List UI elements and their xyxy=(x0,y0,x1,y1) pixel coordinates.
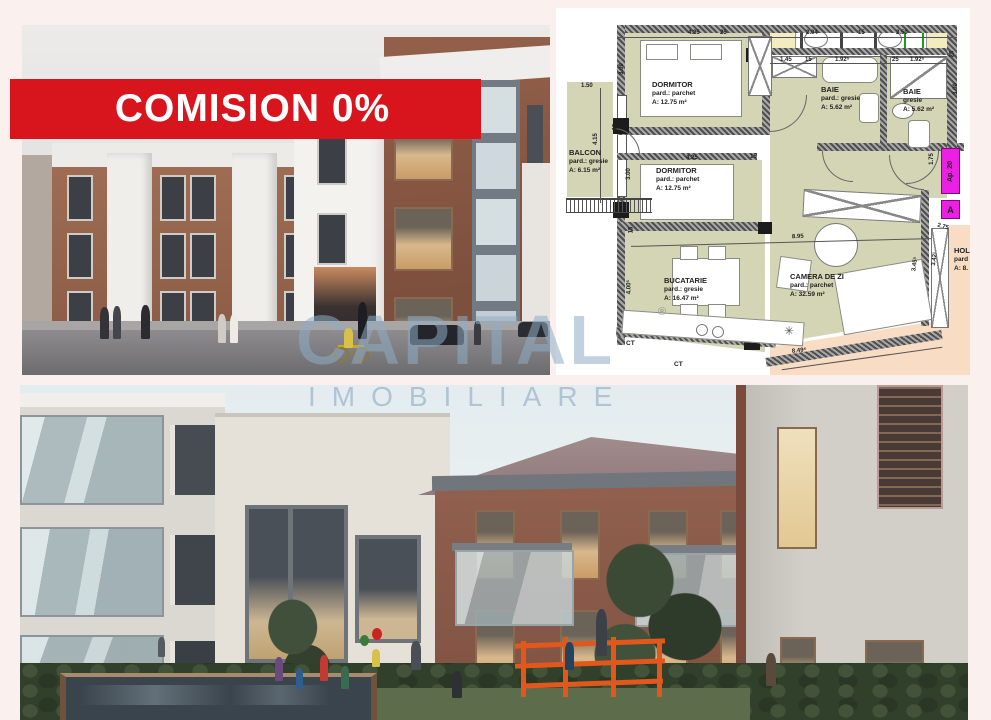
balloon-green xyxy=(360,635,369,646)
window xyxy=(317,133,347,185)
ct-label: CT xyxy=(626,340,635,347)
dimension-label: 4.25 xyxy=(688,30,700,36)
room-floor: pard.: gresie xyxy=(664,286,707,295)
pedestrian xyxy=(141,305,150,339)
dimension-label: 15 xyxy=(612,124,618,131)
dimension-label: 15 xyxy=(628,227,634,234)
room-area: A: 16.47 m² xyxy=(664,295,707,304)
wall xyxy=(617,127,770,135)
room-label-baie-1: BAIE pard.: gresie A: 5.62 m² xyxy=(821,85,860,113)
glass-pane xyxy=(476,143,516,189)
dimension-label: 15 xyxy=(858,30,865,36)
wardrobe xyxy=(748,36,772,96)
window xyxy=(190,233,216,279)
letter-tag-label: A xyxy=(947,205,954,215)
room-label-dormitor-2: DORMITOR pard.: parchet A: 12.75 m² xyxy=(656,166,699,194)
chair xyxy=(680,246,698,260)
toilet xyxy=(859,93,879,123)
room-name: DORMITOR xyxy=(652,80,695,90)
balcony-railing xyxy=(566,198,652,213)
dimension-label: 4.00⁵ xyxy=(626,280,632,295)
dimension-line xyxy=(770,63,948,64)
dimension-label: 25 xyxy=(892,57,899,63)
room-name: BAIE xyxy=(903,87,934,97)
glass-pane xyxy=(476,199,516,245)
dimension-label: 1.50 xyxy=(581,83,593,89)
dimension-line xyxy=(617,37,957,38)
person xyxy=(296,668,303,689)
dimension-line xyxy=(600,88,601,203)
column xyxy=(758,222,772,234)
glass-pane xyxy=(476,255,516,301)
room-name: CAMERA DE ZI xyxy=(790,272,844,282)
room-area: A: 12.75 m² xyxy=(656,185,699,194)
round-table xyxy=(814,223,858,267)
play-bar xyxy=(515,638,665,648)
room-floor: pard.: gresie xyxy=(821,95,860,104)
room-name: BALCON xyxy=(569,148,608,158)
wall-banner xyxy=(877,385,943,509)
room-label-hol: HOL pard A: 8. xyxy=(954,246,970,274)
wall xyxy=(765,48,947,55)
window xyxy=(777,427,817,549)
window xyxy=(160,175,186,221)
bicycle-wheel xyxy=(354,347,369,362)
letter-tag: A xyxy=(941,200,960,219)
person xyxy=(565,642,574,670)
dimension-label: 2.50 xyxy=(896,30,908,36)
room-floor: pard.: parchet xyxy=(790,282,844,291)
person xyxy=(158,637,165,657)
glass-balcony xyxy=(20,415,164,505)
pedestrian xyxy=(100,307,109,339)
room-name: BUCATARIE xyxy=(664,276,707,286)
wall xyxy=(880,55,887,151)
room-area: A: 5.62 m² xyxy=(903,106,934,115)
room-floor: pard.: gresie xyxy=(569,158,608,167)
car xyxy=(518,322,548,337)
window xyxy=(67,233,93,279)
toilet xyxy=(908,120,930,148)
window xyxy=(67,175,93,221)
balloon-red xyxy=(372,628,382,640)
dimension-label: 15 xyxy=(750,154,757,160)
pedestrian xyxy=(358,302,367,339)
photo-courtyard-render xyxy=(20,385,968,720)
room-area: A: 5.62 m² xyxy=(821,104,860,113)
play-bar xyxy=(523,679,663,689)
window xyxy=(190,175,216,221)
registered-mark: ® xyxy=(658,306,666,318)
person xyxy=(275,657,283,681)
room-area: A: 8. xyxy=(954,265,970,274)
room-floor: pard.: parchet xyxy=(656,176,699,185)
room-area: A: 32.59 m² xyxy=(790,291,844,300)
dimension-label: 25 xyxy=(720,30,727,36)
dimension-label: 1.92⁵ xyxy=(835,57,850,63)
dimension-label: 2.04 xyxy=(806,30,818,36)
listing-collage: ✳ DORMITOR pard.: parchet A: 12.75 m² DO… xyxy=(0,0,991,720)
play-bar xyxy=(515,658,665,668)
pedestrian xyxy=(113,306,121,339)
room-area: A: 12.75 m² xyxy=(652,99,695,108)
dimension-label: 3.00 xyxy=(953,83,959,95)
dimension-label: 3.00 xyxy=(626,168,632,180)
fan-symbol: ✳ xyxy=(784,324,794,338)
person xyxy=(452,671,462,698)
floorplan: ✳ DORMITOR pard.: parchet A: 12.75 m² DO… xyxy=(556,8,970,375)
dimension-label: 15 xyxy=(805,57,812,63)
play-post xyxy=(521,641,526,697)
bathtub xyxy=(822,57,878,83)
person xyxy=(372,649,380,667)
wall xyxy=(617,222,769,231)
dimension-label: 1.45 xyxy=(780,57,792,63)
chair xyxy=(708,246,726,260)
dimension-label: 1.92⁵ xyxy=(910,57,925,63)
pedestrian xyxy=(218,314,226,343)
person xyxy=(596,609,607,656)
big-window xyxy=(355,535,421,643)
glass-balcony xyxy=(455,550,574,626)
dimension-label: 4.25 xyxy=(686,155,698,161)
glass-balcony xyxy=(20,527,164,617)
pillow xyxy=(690,44,722,60)
room-floor: pard.: parchet xyxy=(652,90,695,99)
room-label-camera-de-zi: CAMERA DE ZI pard.: parchet A: 32.59 m² xyxy=(790,272,844,300)
room-label-bucatarie: BUCATARIE pard.: gresie A: 16.47 m² xyxy=(664,276,707,304)
window xyxy=(394,207,453,271)
window xyxy=(160,233,186,279)
play-post xyxy=(611,637,616,697)
room-label-dormitor-1: DORMITOR pard.: parchet A: 12.75 m² xyxy=(652,80,695,108)
person xyxy=(411,641,421,670)
person xyxy=(766,653,776,686)
room-name: BAIE xyxy=(821,85,860,95)
window xyxy=(317,213,347,265)
play-post xyxy=(657,641,662,697)
pedestrian xyxy=(474,321,481,345)
car xyxy=(410,325,464,345)
dimension-label: 4.15 xyxy=(593,133,599,145)
room-name: DORMITOR xyxy=(656,166,699,176)
room-balcon xyxy=(567,82,613,197)
room-name: HOL xyxy=(954,246,970,256)
apartment-tag: Ap. 20 xyxy=(941,148,960,194)
fascia xyxy=(20,393,225,407)
photo-street-render xyxy=(22,25,550,375)
glass-pane xyxy=(476,87,516,133)
ct-label: CT xyxy=(674,361,683,368)
pedestrian xyxy=(230,314,238,343)
closet-shaft xyxy=(931,228,949,328)
room-area: A: 6.15 m² xyxy=(569,167,608,176)
planter-reflection xyxy=(80,685,330,705)
dimension-label: 8.95 xyxy=(792,234,804,240)
room-floor: pard xyxy=(954,256,970,265)
play-structure xyxy=(515,635,667,699)
person xyxy=(341,666,349,689)
person xyxy=(320,655,328,681)
dimension-label: 25 xyxy=(949,51,955,58)
room-label-baie-2: BAIE gresie A: 5.62 m² xyxy=(903,87,934,115)
wall xyxy=(947,25,957,165)
commission-banner: COMISION 0% xyxy=(10,79,481,139)
pillow xyxy=(646,44,678,60)
bicycle-wheel xyxy=(334,347,349,362)
room-floor: gresie xyxy=(903,97,934,106)
dimension-label: 1.75 xyxy=(929,153,935,165)
apartment-tag-label: Ap. 20 xyxy=(947,160,954,181)
dimension-label: 3.09 xyxy=(619,63,625,75)
commission-banner-label: COMISION 0% xyxy=(101,87,390,131)
cyclist xyxy=(344,328,353,348)
room-label-balcon: BALCON pard.: gresie A: 6.15 m² xyxy=(569,148,608,176)
